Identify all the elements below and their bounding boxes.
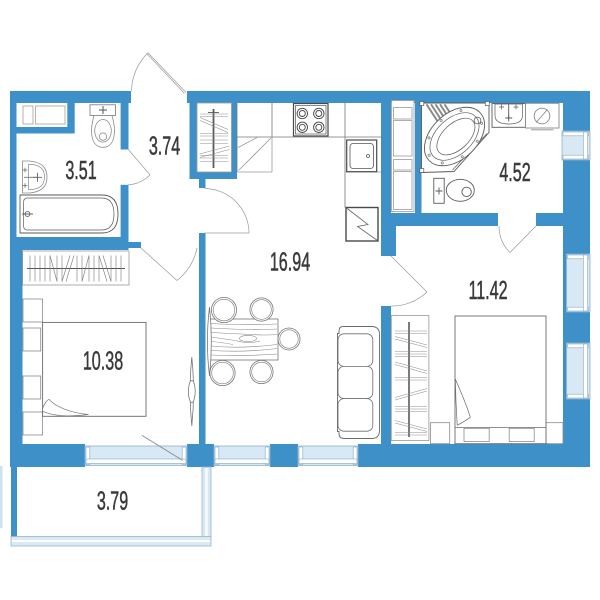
svg-text:16.94: 16.94: [270, 246, 310, 276]
svg-text:3.79: 3.79: [97, 485, 128, 515]
svg-text:4.52: 4.52: [499, 157, 530, 187]
svg-text:3.74: 3.74: [149, 130, 180, 160]
svg-text:3.51: 3.51: [65, 155, 96, 185]
svg-text:10.38: 10.38: [83, 345, 123, 375]
svg-text:11.42: 11.42: [468, 275, 507, 305]
